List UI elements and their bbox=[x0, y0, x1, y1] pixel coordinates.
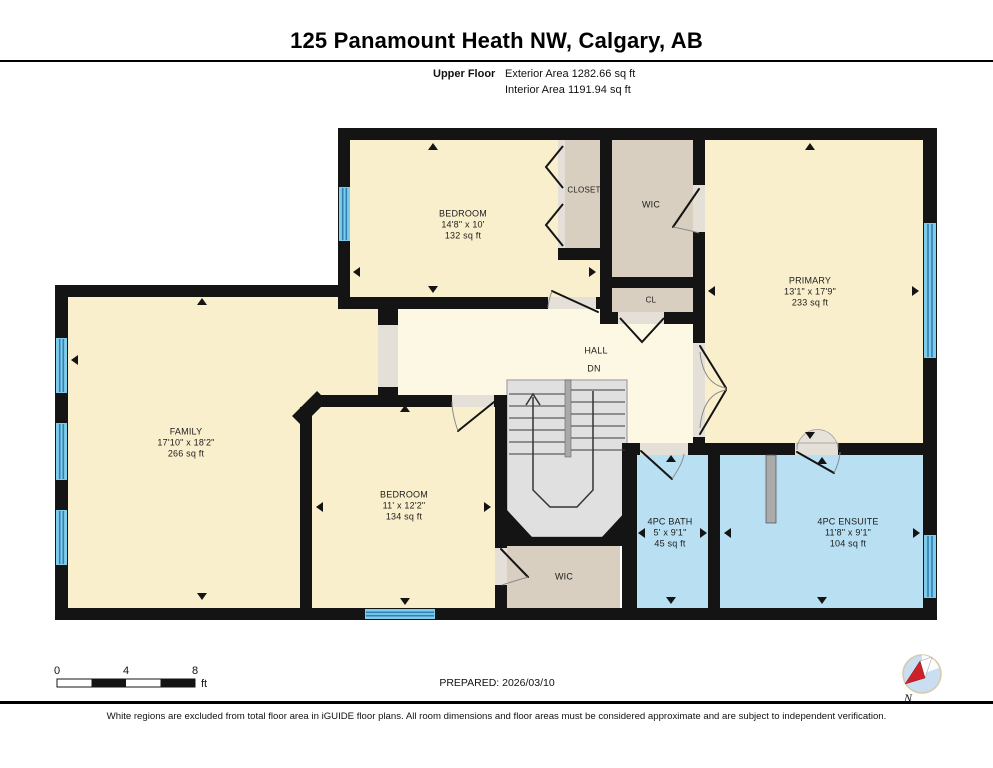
scale-tick-4: 4 bbox=[123, 665, 129, 677]
room-name: CLOSET bbox=[567, 185, 600, 196]
ensuite-knee-wall bbox=[766, 455, 776, 523]
stairs-dn-label: DN bbox=[587, 364, 600, 375]
scale-unit: ft bbox=[201, 678, 207, 690]
room-name: FAMILY bbox=[157, 427, 214, 438]
room-area: 266 sq ft bbox=[157, 449, 214, 460]
room-area: 45 sq ft bbox=[648, 539, 693, 550]
room-name: WIC bbox=[555, 572, 573, 583]
window-family-3 bbox=[56, 510, 67, 565]
scale-tick-8: 8 bbox=[192, 665, 198, 677]
room-name: CL bbox=[646, 295, 657, 306]
room-name: 4PC ENSUITE bbox=[817, 517, 878, 528]
stair-stringer bbox=[565, 380, 571, 457]
room-name: WIC bbox=[642, 200, 660, 211]
room-dims: 13'1" x 17'9" bbox=[784, 287, 836, 298]
room-area: 134 sq ft bbox=[380, 512, 428, 523]
compass-icon bbox=[903, 655, 941, 693]
room-area: 233 sq ft bbox=[784, 298, 836, 309]
room-dims: 5' x 9'1" bbox=[648, 528, 693, 539]
room-dims: 14'8" x 10' bbox=[439, 220, 487, 231]
room-dims: 17'10" x 18'2" bbox=[157, 438, 214, 449]
footer-divider bbox=[0, 701, 993, 704]
scale-bar bbox=[57, 679, 195, 687]
floorplan-drawing bbox=[0, 0, 993, 768]
room-label-wic-bottom: WIC bbox=[555, 572, 573, 583]
window-ensuite-right bbox=[924, 535, 936, 598]
room-name: 4PC BATH bbox=[648, 517, 693, 528]
window-bedroom-top-left bbox=[339, 187, 350, 241]
room-name: PRIMARY bbox=[784, 276, 836, 287]
room-dims: 11' x 12'2" bbox=[380, 501, 428, 512]
room-name: HALL bbox=[584, 346, 607, 357]
room-label-cl: CL bbox=[646, 295, 657, 306]
room-label-wic-top: WIC bbox=[642, 200, 660, 211]
window-primary-right bbox=[924, 223, 936, 358]
room-name: BEDROOM bbox=[439, 209, 487, 220]
window-bedroom-bottom bbox=[365, 609, 435, 619]
window-family-2 bbox=[56, 423, 67, 480]
room-label-bedroom-top: BEDROOM 14'8" x 10' 132 sq ft bbox=[439, 209, 487, 242]
scale-tick-0: 0 bbox=[54, 665, 60, 677]
room-label-primary: PRIMARY 13'1" x 17'9" 233 sq ft bbox=[784, 276, 836, 309]
room-label-bath: 4PC BATH 5' x 9'1" 45 sq ft bbox=[648, 517, 693, 550]
prepared-date: PREPARED: 2026/03/10 bbox=[439, 677, 554, 689]
room-dims: 11'8" x 9'1" bbox=[817, 528, 878, 539]
room-label-bedroom-bottom: BEDROOM 11' x 12'2" 134 sq ft bbox=[380, 490, 428, 523]
room-area: 104 sq ft bbox=[817, 539, 878, 550]
room-name: BEDROOM bbox=[380, 490, 428, 501]
room-label-closet: CLOSET bbox=[567, 185, 600, 196]
floorplan-page: 125 Panamount Heath NW, Calgary, AB Uppe… bbox=[0, 0, 993, 768]
room-label-ensuite: 4PC ENSUITE 11'8" x 9'1" 104 sq ft bbox=[817, 517, 878, 550]
disclaimer-text: White regions are excluded from total fl… bbox=[0, 711, 993, 722]
dn-label: DN bbox=[587, 364, 600, 375]
room-label-hall: HALL bbox=[584, 346, 607, 357]
room-label-family: FAMILY 17'10" x 18'2" 266 sq ft bbox=[157, 427, 214, 460]
window-family-1 bbox=[56, 338, 67, 393]
room-area: 132 sq ft bbox=[439, 231, 487, 242]
